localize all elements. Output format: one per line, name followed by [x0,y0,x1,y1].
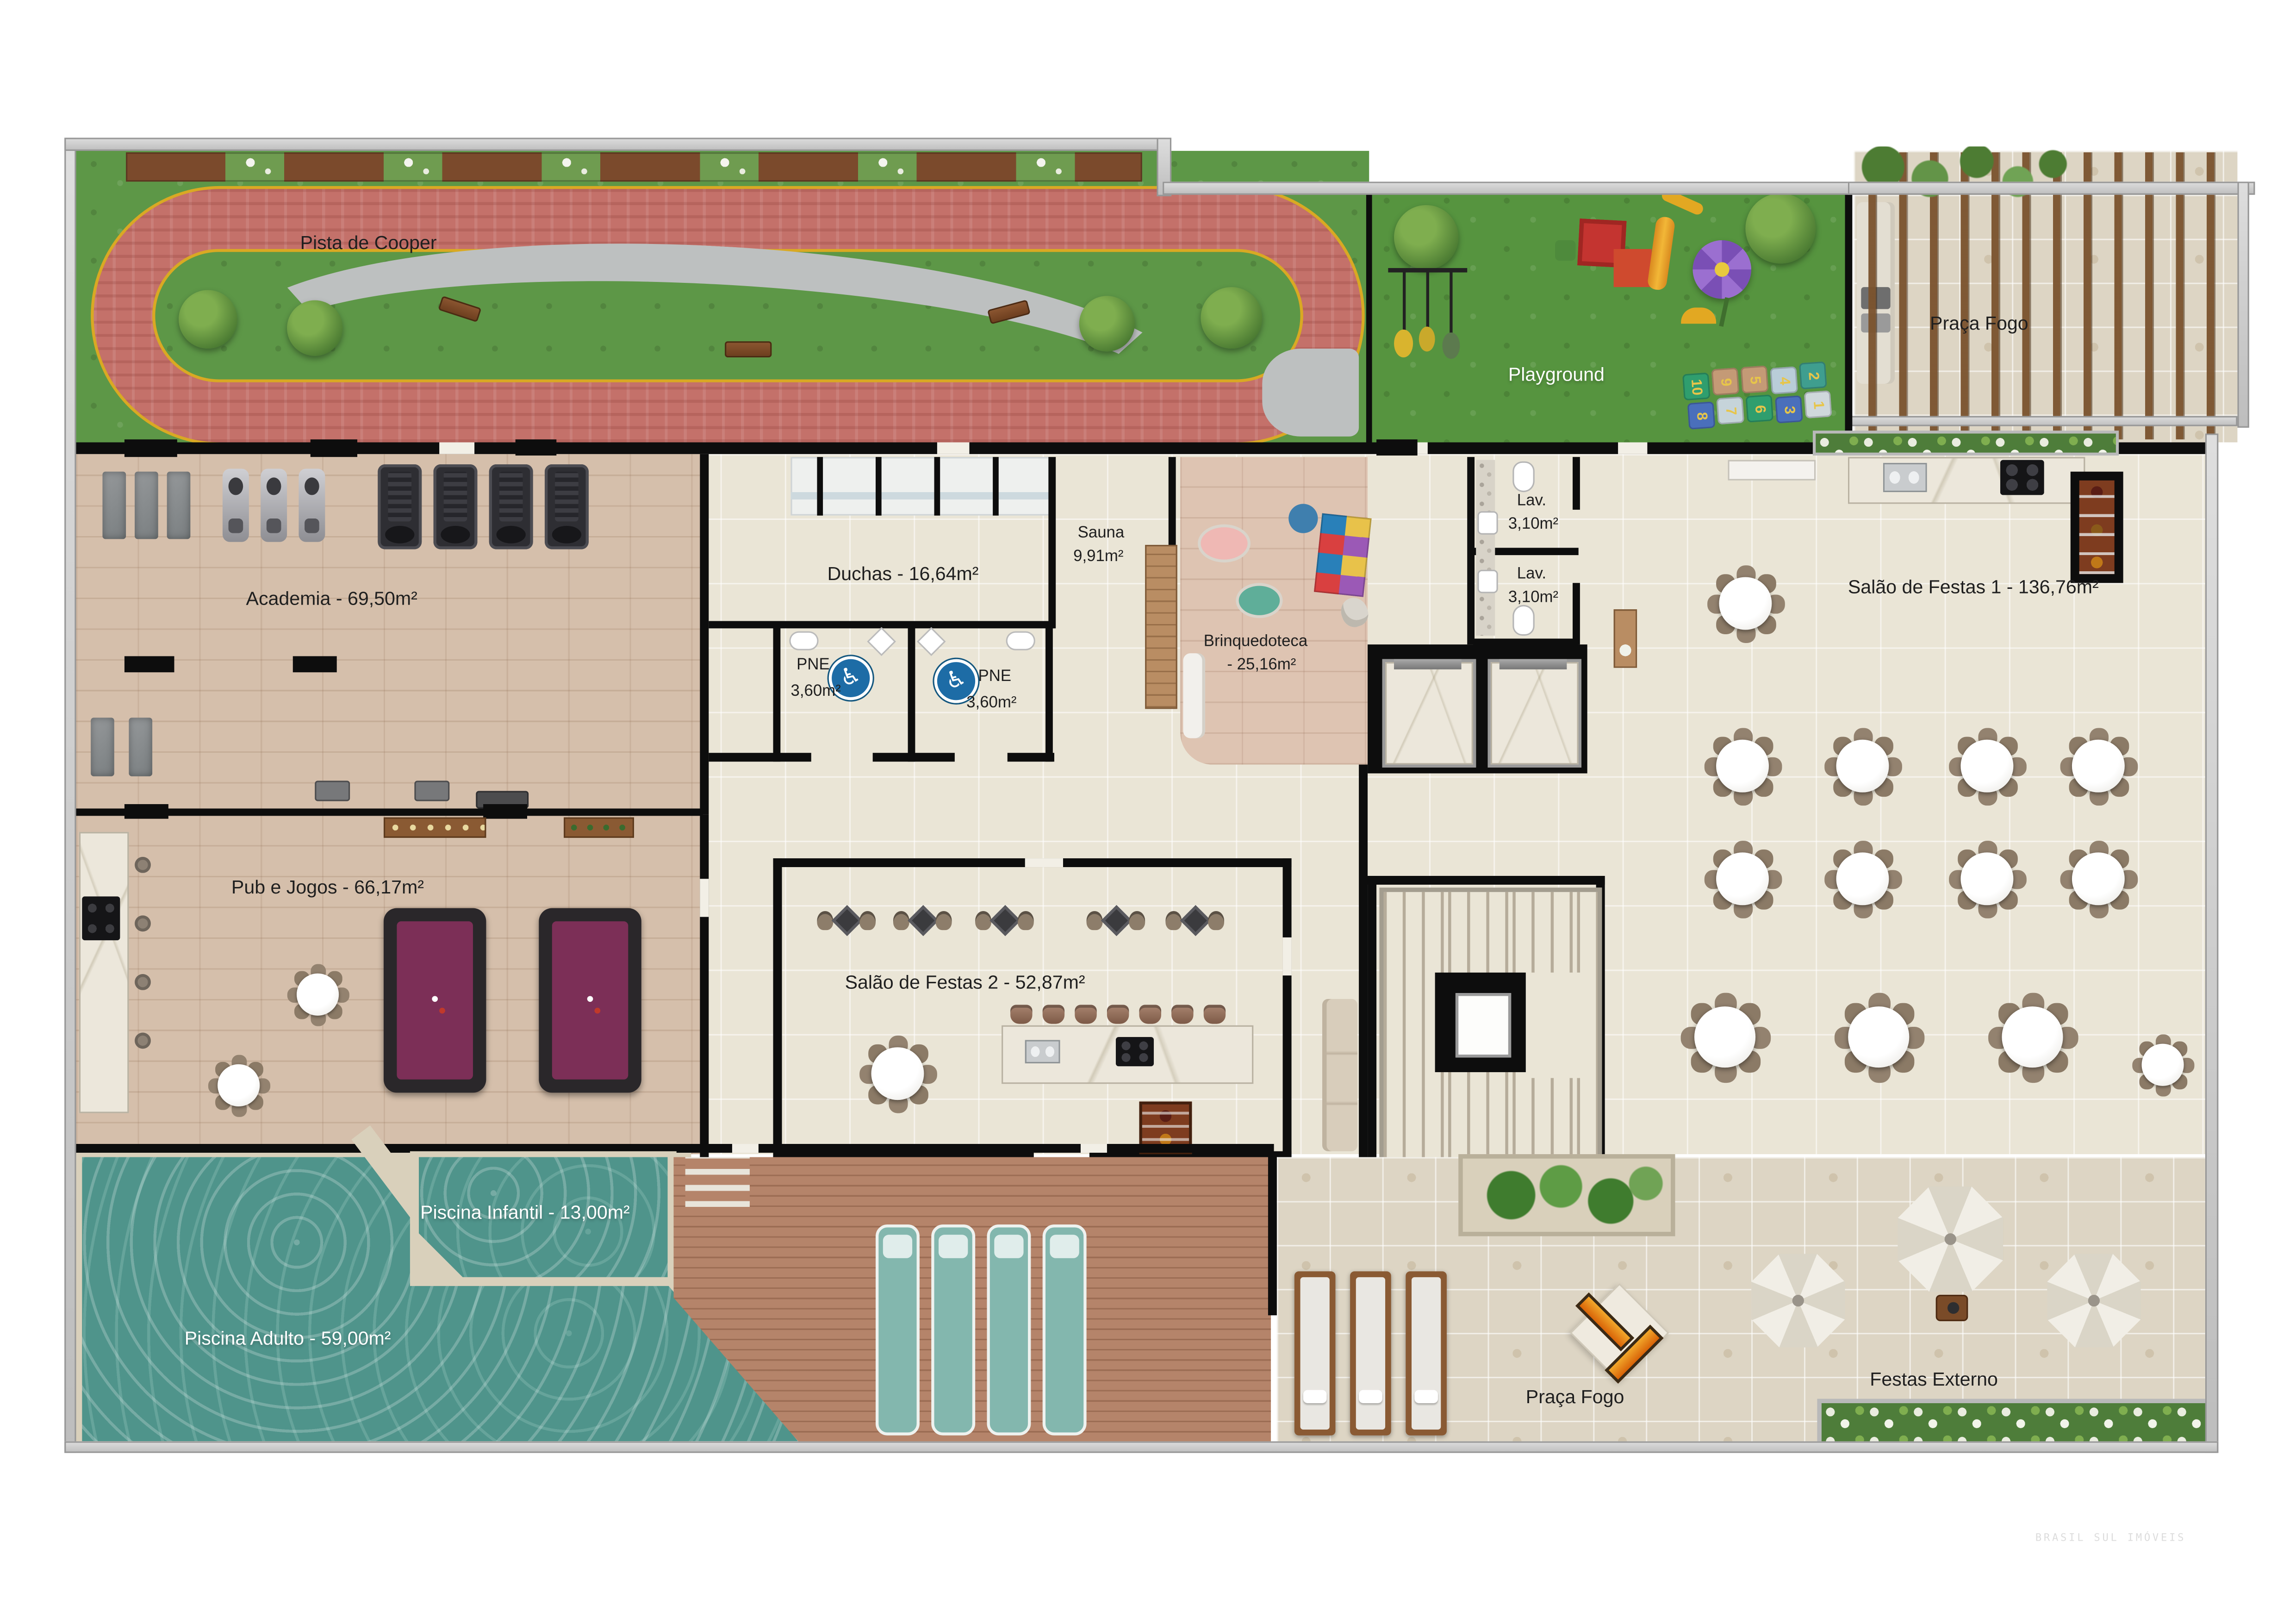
kids-table-teal [1239,586,1280,615]
round-table-large [1679,991,1771,1083]
label-pne-area: 3,60m² [791,682,841,700]
wall [709,753,811,762]
label-piscina-infantil: Piscina Infantil - 13,00m² [420,1201,630,1223]
gym-bench [315,781,350,801]
wall-pier [516,439,557,456]
label-pne: PNE [796,656,830,674]
wall [76,808,703,816]
exercise-bike [261,468,287,542]
bar-stool [135,915,151,931]
stall-divider [817,457,823,516]
wall [1169,457,1176,545]
wall [1573,583,1580,644]
wood-lounger [1294,1271,1336,1435]
round-table [1823,726,1902,806]
stall-divider [993,457,999,516]
sink [1479,512,1497,533]
bar-stool [1204,1005,1226,1024]
sun-lounger [931,1224,975,1436]
label-sauna-area: 9,91m² [1073,548,1123,565]
label-piscina-adulto: Piscina Adulto - 59,00m² [185,1327,391,1349]
wall [1845,187,1853,447]
shower-tray-line [791,492,1052,500]
round-table [1703,726,1782,806]
wall-pier [483,804,527,819]
pergola-beam [1848,416,2238,426]
label-academia: Academia - 69,50m² [246,587,417,609]
door-gap [1618,442,1647,454]
wall-pier [311,439,357,457]
outer-wall-left [64,137,76,1453]
bbq-grill [2079,481,2115,574]
sauna-bench [1145,545,1177,709]
wall [1045,627,1053,762]
kids-sofa [1183,653,1205,738]
exercise-bike [223,468,249,542]
wall [1048,457,1056,628]
play-structure [1570,214,1684,305]
door-gap [1283,937,1292,975]
bar-stool [135,974,151,990]
label-brinquedoteca-area: - 25,16m² [1227,656,1296,674]
stall-divider [934,457,940,516]
tree [179,290,237,349]
exercise-bike [299,468,325,542]
fire-pit [1555,1295,1681,1388]
wall [773,858,782,1160]
bar-stool [1075,1005,1096,1024]
round-table [1703,839,1782,918]
label-lav: Lav. [1517,492,1546,510]
sf2-sink [1025,1040,1060,1063]
bar-stool [1107,1005,1129,1024]
stair-wall [1368,876,1605,885]
treadmill [545,464,589,550]
wall [700,454,709,814]
round-table-large [1986,991,2078,1083]
wall [1366,187,1372,447]
label-lav-area: 3,10m² [1508,589,1558,606]
bar-stool [135,857,151,873]
puzzle-mat [1314,513,1372,597]
pergola-wall-right [2237,181,2249,428]
bar-stool [135,1033,151,1049]
outer-wall-top2 [1163,181,1862,194]
pool-table [539,908,641,1093]
round-table [207,1054,270,1117]
treadmill [378,464,422,550]
round-table [2059,839,2138,918]
tree [1745,194,1816,264]
stall-divider [876,457,882,516]
label-lav: Lav. [1517,565,1546,583]
toilet [1514,606,1533,634]
label-duchas: Duchas - 16,64m² [828,562,979,584]
shower-stalls [791,457,1052,516]
wall [700,814,709,1157]
umbrella [2047,1254,2140,1347]
gym-mat [135,472,158,539]
tree [1079,296,1135,351]
round-table [2059,726,2138,806]
wall [1573,457,1580,510]
elevator-door [1500,659,1567,669]
round-table [1948,726,2027,806]
bistro-row [814,896,1253,946]
wood-lounger [1350,1271,1391,1435]
label-praca-fogo-bottom: Praça Fogo [1526,1386,1624,1407]
outer-wall-top [64,137,1165,150]
sf1-stove [2000,460,2044,495]
label-playground: Playground [1508,363,1605,385]
sf2-stove [1116,1037,1154,1066]
sink [1479,571,1497,592]
elevator-car [1382,659,1476,768]
flower-bed-blooms [126,152,1142,181]
sofa [1322,999,1357,1151]
pergola-beam-top [1848,181,2255,194]
sf1-planter [1816,434,2116,453]
tree [1394,205,1458,269]
bar-stool [1171,1005,1193,1024]
wood-lounger [1406,1271,1447,1435]
treadmill [489,464,533,550]
wall [773,627,781,762]
round-table [286,963,349,1026]
treadmill [434,464,478,550]
label-salao2: Salão de Festas 2 - 52,87m² [845,971,1085,993]
door-gap [700,879,709,917]
round-table [858,1034,937,1113]
outer-wall-bottom [64,1441,2218,1453]
hopscotch-mat: 10 9 5 4 2 8 7 6 3 1 [1682,361,1832,430]
label-lav-area: 3,10m² [1508,516,1558,533]
round-table [1948,839,2027,918]
kids-table-blue [1288,504,1318,533]
bench [725,341,772,357]
pinwheel-center [1715,262,1730,277]
label-pne: PNE [978,668,1011,686]
wall [709,621,1054,628]
tree [287,300,342,356]
sun-lounger [987,1224,1031,1436]
bar-stool [1043,1005,1064,1024]
round-table-large [1833,991,1924,1083]
label-festas-externo: Festas Externo [1870,1368,1998,1390]
stair-core-inner [1456,993,1511,1057]
door-gap [439,442,474,454]
sf1-fridge [1728,460,1816,480]
gym-machine [129,718,152,776]
toilet [791,633,817,649]
gym-machine [91,718,114,776]
elevator-car [1488,659,1581,768]
wall [1283,858,1292,1160]
toilet [1008,633,1034,649]
round-table [2131,1033,2195,1097]
side-table-flowers [1614,609,1637,668]
wall [873,753,955,762]
deck-steps [685,1157,750,1207]
watermark: BRASIL SUL IMÓVEIS [2035,1532,2186,1543]
label-pista-de-cooper: Pista de Cooper [300,231,437,253]
umbrella [1751,1254,1845,1347]
wine-shelf [564,817,634,837]
outer-wall-right [2205,434,2218,1453]
wall-pier [1376,439,1418,456]
label-brinquedoteca: Brinquedoteca [1204,633,1307,650]
wall-pier [124,804,168,819]
kettle [1948,1302,1959,1314]
round-table [1823,839,1902,918]
wall-pier [293,656,337,672]
bar-cooktop [82,896,120,940]
gray-path-end [1262,349,1359,437]
kids-table-pink [1201,527,1247,560]
sf1-sink [1883,463,1927,492]
flower-planter [1822,1403,2211,1444]
label-pne-area: 3,60m² [966,694,1016,712]
label-pub: Pub e Jogos - 66,17m² [231,876,424,898]
wall [1359,765,1368,1181]
palm-plants [1467,1160,1666,1230]
door-gap [732,1144,759,1153]
sun-lounger [876,1224,920,1436]
gym-mat [102,472,126,539]
stairs-landing [1523,973,1590,1078]
door-gap [1025,858,1063,867]
pub-bar [79,832,129,1113]
label-salao1: Salão de Festas 1 - 136,76m² [1848,575,2099,597]
lav-speckle-strip [1476,460,1495,636]
toilet [1514,463,1533,491]
door-gap [937,442,970,454]
stair-wall [1368,876,1376,1183]
gym-mat [167,472,191,539]
bar-stool [1139,1005,1161,1024]
wall [1268,1157,1277,1315]
label-sauna: Sauna [1078,525,1125,542]
bar-stool [1010,1005,1032,1024]
door-gap [1081,1144,1107,1153]
elevator-door [1394,659,1462,669]
tree [1201,287,1262,349]
sun-lounger [1043,1224,1087,1436]
gym-bench [414,781,449,801]
wall [1008,753,1054,762]
floor-plan: Pista de Cooper 10 9 5 4 2 8 7 6 3 1 Pla [0,0,2296,1624]
wall-pier [124,656,174,672]
swing-set [1388,268,1467,356]
wall [908,627,915,762]
label-praca-fogo-top: Praça Fogo [1930,312,2028,334]
wall-pier [124,439,177,457]
wine-shelf [384,817,486,837]
round-table [1706,564,1785,643]
pool-table [384,908,486,1093]
